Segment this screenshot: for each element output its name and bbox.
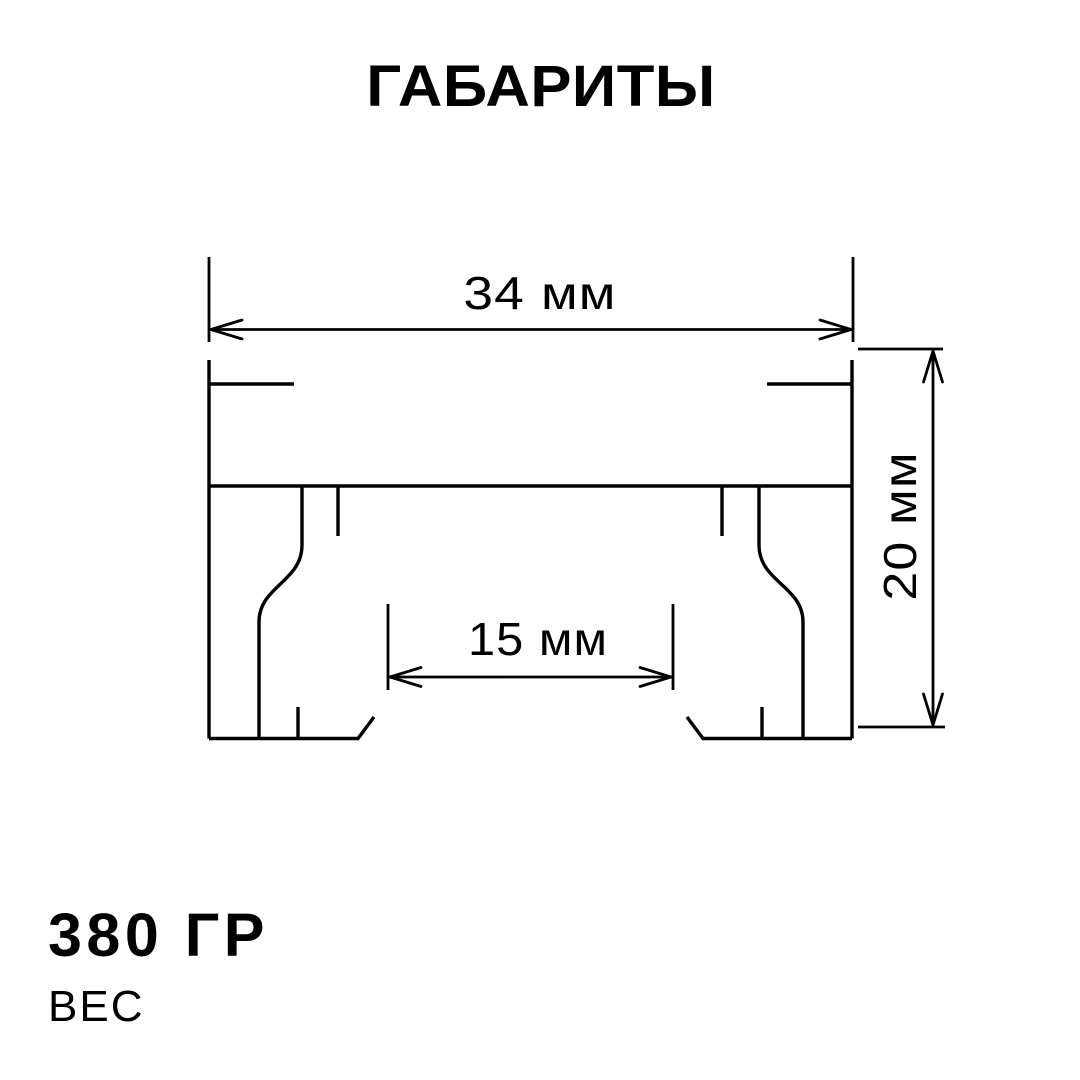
svg-text:ГАБАРИТЫ: ГАБАРИТЫ (366, 54, 715, 119)
svg-text:20 мм: 20 мм (876, 451, 927, 600)
svg-text:34 мм: 34 мм (463, 267, 616, 319)
svg-text:ВЕС: ВЕС (48, 982, 144, 1031)
svg-text:15 мм: 15 мм (468, 614, 608, 665)
svg-text:380 ГР: 380 ГР (48, 901, 269, 969)
